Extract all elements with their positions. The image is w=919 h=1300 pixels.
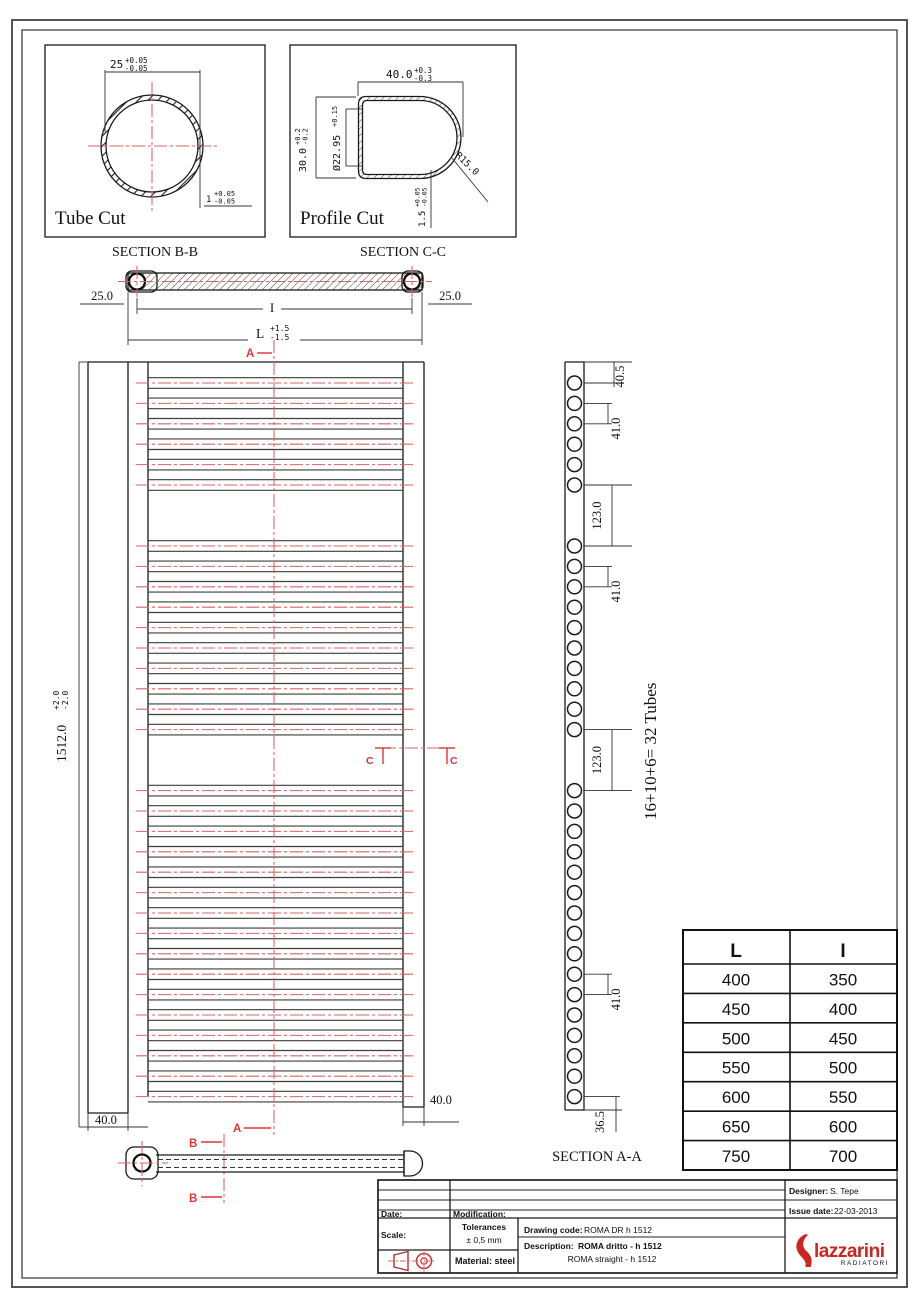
brand-name: lazzarini [814, 1241, 884, 1262]
dim-inner: I [270, 300, 274, 315]
table-cell-I: 500 [829, 1059, 857, 1078]
scale-label: Scale: [381, 1230, 406, 1240]
svg-text:-0.05: -0.05 [421, 187, 429, 207]
svg-text:-0.05: -0.05 [214, 198, 235, 206]
dim-tube-dia: 25 [110, 58, 123, 71]
tolerances-label: Tolerances [462, 1222, 507, 1232]
title-block: Date: Modification: Scale: Tolerances ± … [378, 1180, 897, 1273]
svg-text:-2.0: -2.0 [61, 691, 70, 710]
svg-text:41.0: 41.0 [609, 418, 623, 440]
profile-wall-hatch [359, 97, 461, 179]
tube-hole [568, 804, 582, 818]
tube-hole [568, 906, 582, 920]
tube-hole [568, 926, 582, 940]
svg-text:+0.15: +0.15 [331, 106, 339, 127]
marker-a-top: A [246, 348, 254, 360]
tube-hole [568, 539, 582, 553]
brand-subtitle: RADIATORI [841, 1260, 889, 1267]
table-cell-L: 600 [722, 1088, 750, 1107]
tube-cut-title: Tube Cut [55, 208, 126, 229]
tube-hole [568, 559, 582, 573]
table-cell-L: 400 [722, 970, 750, 989]
tube-hole [568, 988, 582, 1002]
dim-label: 40.5 [613, 366, 627, 388]
tube-hole [568, 396, 582, 410]
tube-hole [568, 682, 582, 696]
section-cc-profile-cut: 40.0 +0.3 -0.3 30.0 +0.2 -0.2 Ø22.95 +0.… [290, 45, 516, 260]
plan-view: 25.0 25.0 I L +1.5 -1.5 [80, 266, 472, 345]
tube-count-note: 16+10+6= 32 Tubes [641, 683, 660, 820]
dim-bottom-left: 40.0 [95, 1113, 117, 1127]
tube-hole [568, 824, 582, 838]
table-cell-I: 600 [829, 1118, 857, 1137]
dim-label: 41.0 [609, 418, 623, 440]
table-cell-L: 500 [722, 1029, 750, 1048]
svg-text:1.5: 1.5 [418, 211, 428, 227]
dim-label: 36.5 [593, 1111, 607, 1133]
marker-a-bottom: A [233, 1123, 241, 1135]
date-label: Date: [381, 1209, 402, 1219]
svg-text:41.0: 41.0 [609, 581, 623, 603]
description-alt-value: ROMA straight - h 1512 [568, 1254, 657, 1264]
front-tubes [136, 378, 414, 1102]
svg-text:+1.5: +1.5 [270, 324, 289, 333]
svg-text:-0.05: -0.05 [125, 64, 148, 73]
dim-label: 123.0 [590, 746, 604, 774]
table-cell-I: 700 [829, 1147, 857, 1166]
tube-hole [568, 702, 582, 716]
marker-c-right: C [450, 755, 458, 767]
drawing-code-value: ROMA DR h 1512 [584, 1225, 652, 1235]
dim-offset-right: 25.0 [439, 289, 461, 303]
table-cell-L: 650 [722, 1118, 750, 1137]
table-cell-I: 350 [829, 970, 857, 989]
table-cell-L: 550 [722, 1059, 750, 1078]
svg-text:-0.3: -0.3 [414, 74, 432, 83]
table-cell-I: 450 [829, 1029, 857, 1048]
svg-text:1512.0: 1512.0 [54, 725, 69, 762]
tube-hole [568, 600, 582, 614]
tube-hole [568, 723, 582, 737]
designer-label: Designer: [789, 1186, 828, 1196]
tube-hole [568, 437, 582, 451]
tube-hole [568, 1008, 582, 1022]
svg-text:41.0: 41.0 [609, 988, 623, 1010]
tolerances-value: ± 0,5 mm [466, 1235, 501, 1245]
size-table: L I 400350450400500450550500600550650600… [683, 930, 897, 1170]
tube-hole [568, 458, 582, 472]
dim-front-height: 1512.0 +2.0 -2.0 [52, 691, 70, 762]
modification-label: Modification: [453, 1209, 506, 1219]
dim-profile-bore: Ø22.95 +0.15 [331, 106, 343, 171]
tube-hole [568, 784, 582, 798]
table-cell-L: 750 [722, 1147, 750, 1166]
profile-inner [363, 101, 458, 175]
issue-date-value: 22-03-2013 [834, 1206, 878, 1216]
front-view: A A C C 1512.0 +2.0 -2.0 40.0 40.0 [52, 340, 459, 1135]
tube-hole [568, 1090, 582, 1104]
svg-text:36.5: 36.5 [593, 1111, 607, 1133]
dim-bottom-right: 40.0 [430, 1093, 452, 1107]
issue-date-label: Issue date: [789, 1206, 834, 1216]
table-header-I: I [840, 941, 845, 962]
profile-cut-title: Profile Cut [300, 208, 385, 229]
svg-text:30.0: 30.0 [298, 148, 309, 172]
dim-label: 41.0 [609, 988, 623, 1010]
tube-hole [568, 417, 582, 431]
bottom-tube-view: B B [118, 1134, 423, 1205]
dim-offset-left: 25.0 [91, 289, 113, 303]
section-aa-tube-holes [568, 376, 582, 1104]
dim-tube-wall: 1 [206, 195, 211, 205]
tube-hole [568, 865, 582, 879]
drawing-code-label: Drawing code: [524, 1225, 583, 1235]
tube-hole [568, 478, 582, 492]
tube-hole [568, 947, 582, 961]
svg-text:-0.2: -0.2 [302, 128, 310, 145]
tube-hole [568, 376, 582, 390]
svg-text:123.0: 123.0 [590, 501, 604, 529]
marker-b-bottom: B [189, 1193, 197, 1205]
dim-length: L [256, 326, 264, 341]
section-aa-dimensions: 40.541.041.041.0123.0123.036.5 [584, 362, 632, 1133]
dim-label: 123.0 [590, 501, 604, 529]
table-header-L: L [730, 941, 742, 962]
drawing-sheet: 25 +0.05 -0.05 1 +0.05 -0.05 Tube Cut SE… [0, 0, 919, 1300]
table-cell-I: 400 [829, 1000, 857, 1019]
section-bb-tube-cut: 25 +0.05 -0.05 1 +0.05 -0.05 Tube Cut SE… [45, 45, 265, 260]
svg-text:+2.0: +2.0 [52, 691, 61, 710]
section-aa-strip: 40.541.041.041.0123.0123.036.5 16+10+6= … [552, 362, 660, 1165]
dim-profile-height: 30.0 +0.2 -0.2 [294, 128, 310, 172]
tube-hole [568, 845, 582, 859]
svg-text:123.0: 123.0 [590, 746, 604, 774]
tube-hole [568, 580, 582, 594]
marker-b-top: B [189, 1138, 197, 1150]
designer-value: S. Tepe [830, 1186, 859, 1196]
svg-text:40.5: 40.5 [613, 366, 627, 388]
description-label: Description: [524, 1241, 574, 1251]
material-value: Material: steel [455, 1256, 515, 1266]
section-aa-caption: SECTION A-A [552, 1149, 642, 1165]
marker-c-left: C [366, 755, 374, 767]
technical-drawing: 25 +0.05 -0.05 1 +0.05 -0.05 Tube Cut SE… [0, 0, 919, 1300]
tube-hole [568, 661, 582, 675]
tube-hole [568, 1049, 582, 1063]
svg-text:Ø22.95: Ø22.95 [331, 135, 343, 171]
section-cc-caption: SECTION C-C [360, 245, 446, 260]
tube-hole [568, 1069, 582, 1083]
tube-hole [568, 967, 582, 981]
table-cell-I: 550 [829, 1088, 857, 1107]
description-value: ROMA dritto - h 1512 [578, 1241, 662, 1251]
svg-text:-1.5: -1.5 [270, 333, 289, 342]
tube-hole [568, 621, 582, 635]
table-cell-L: 450 [722, 1000, 750, 1019]
tube-hole [568, 641, 582, 655]
svg-text:16+10+6= 32 Tubes: 16+10+6= 32 Tubes [641, 683, 660, 820]
tube-hole [568, 1028, 582, 1042]
dim-profile-width: 40.0 [386, 68, 413, 81]
bottom-tube-cap [404, 1151, 423, 1176]
section-bb-caption: SECTION B-B [112, 245, 198, 260]
tube-hole [568, 886, 582, 900]
dim-profile-wall: 1.5 +0.05 -0.05 [414, 187, 429, 227]
dim-label: 41.0 [609, 581, 623, 603]
